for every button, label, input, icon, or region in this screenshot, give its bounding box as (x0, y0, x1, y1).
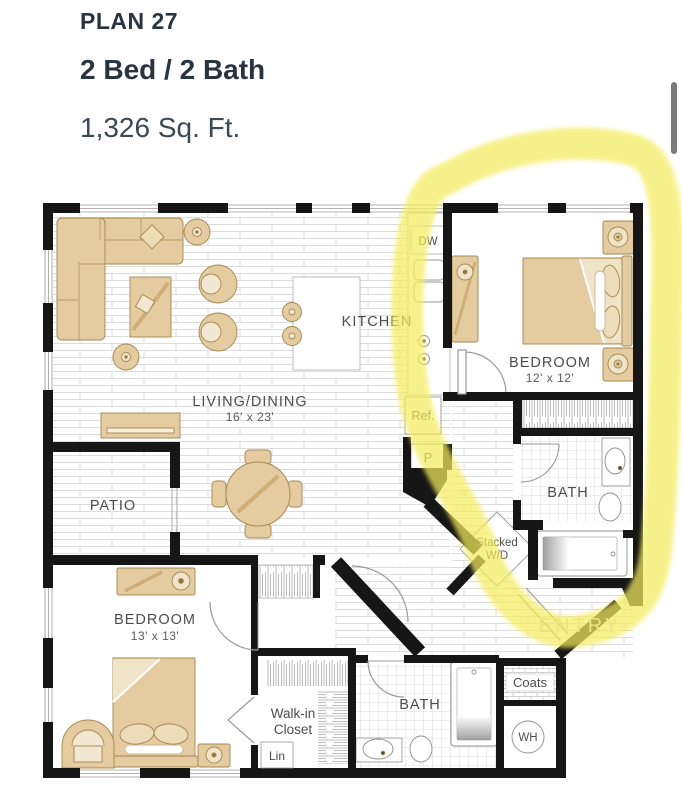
side-table-bottom (113, 344, 139, 370)
coats-label: Coats (513, 675, 547, 690)
living-dining-label: LIVING/DINING (192, 394, 307, 410)
armchair-bottom (199, 313, 237, 351)
dresser-left (117, 568, 195, 595)
walk-in-hanging-top (266, 660, 348, 686)
bed-left (110, 658, 198, 767)
bedroom-right-dims: 12' x 12' (526, 371, 574, 385)
bedroom-right-door (458, 350, 506, 394)
bath-right-tub (537, 531, 627, 576)
bedroom-right-closet (522, 398, 633, 428)
bath-bottom-sink (356, 738, 402, 762)
walk-in-closet-label-2: Closet (274, 722, 313, 737)
bedroom-left-door (210, 602, 258, 650)
patio-label: PATIO (90, 498, 136, 514)
side-table-top (184, 219, 210, 245)
console-table (101, 413, 180, 438)
bath-bottom-label: BATH (399, 697, 441, 713)
bath-right-toilet (599, 493, 621, 521)
bath-bottom-toilet (410, 736, 432, 762)
walk-in-closet-doors (228, 697, 254, 743)
nightstand-right-top (603, 221, 634, 254)
bath-right-label: BATH (547, 485, 589, 501)
armchair-top (199, 265, 237, 303)
reach-in-closet (258, 565, 313, 598)
walk-in-closet-label-1: Walk-in (271, 706, 316, 721)
bath-right-vanity (602, 438, 630, 486)
floor-plan: LIVING/DINING 16' x 23' KITCHEN PATIO BE… (0, 0, 682, 800)
dresser-right (452, 256, 478, 342)
coffee-table (130, 277, 171, 337)
scrollbar-thumb[interactable] (671, 82, 677, 154)
water-heater-label: WH (518, 732, 537, 744)
linen-label: Lin (269, 749, 285, 763)
walk-in-hanging-side (318, 690, 348, 764)
bath-bottom-tub (451, 662, 497, 746)
bed-right (523, 256, 632, 346)
bedroom-left-dims: 13' x 13' (131, 629, 179, 643)
nightstand-right-bottom (603, 348, 634, 381)
bedroom-right-label: BEDROOM (509, 355, 591, 371)
bedroom-left-chair (62, 720, 114, 768)
bedroom-left-label: BEDROOM (114, 612, 196, 628)
living-dining-dims: 16' x 23' (226, 410, 274, 424)
nightstand-left (198, 744, 230, 767)
